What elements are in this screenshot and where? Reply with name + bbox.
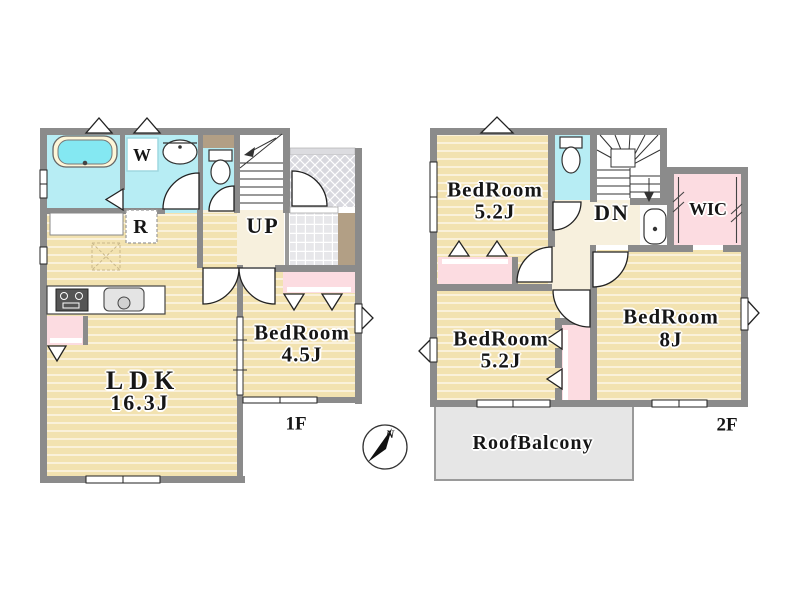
stove-icon — [56, 289, 88, 311]
label-bedroom45-size: 4.5J — [282, 345, 323, 366]
kitchen-counter — [47, 286, 165, 314]
genkan-tile — [290, 213, 338, 265]
label-bedroom-8j-size: 8J — [660, 330, 683, 351]
label-bedroom-top-name: BedRoom — [447, 180, 543, 201]
label-wic: WIC — [689, 200, 727, 218]
sliding-door — [237, 317, 243, 395]
hall-2f-lower — [548, 245, 592, 292]
label-stairs-up: UP — [246, 215, 279, 237]
bathtub-icon — [53, 136, 117, 167]
label-stairs-down: DN — [594, 202, 630, 224]
closet-shelf — [563, 330, 568, 400]
toilet-icon-1f — [209, 150, 232, 184]
entrance-threshold — [290, 207, 338, 213]
label-compass-north: N — [386, 428, 395, 440]
washbasin-icon-2f — [644, 209, 666, 244]
label-bedroom-left-name: BedRoom — [453, 329, 549, 350]
counter-cabinet — [50, 213, 123, 235]
pantry-shelf — [50, 338, 82, 343]
washbasin-icon-1f — [163, 140, 197, 164]
label-floor-1f: 1F — [285, 415, 306, 434]
label-roof-balcony: RoofBalcony — [473, 433, 594, 453]
label-washing-machine: W — [133, 146, 151, 164]
floorplan-drawing — [0, 0, 800, 600]
label-refrigerator: R — [133, 217, 148, 237]
closet-shelf — [442, 259, 508, 264]
label-bedroom45-name: BedRoom — [254, 323, 350, 344]
genkan-side-strip — [338, 213, 355, 265]
sink-icon — [104, 288, 144, 311]
label-bedroom-top-size: 5.2J — [475, 202, 516, 223]
porch-step — [290, 148, 355, 155]
label-bedroom-8j-name: BedRoom — [623, 307, 719, 328]
label-ldk-size: 16.3J — [110, 392, 170, 414]
closet-shelf — [287, 287, 351, 292]
floorplan-1f — [40, 118, 373, 483]
label-bedroom-left-size: 5.2J — [481, 351, 522, 372]
label-floor-2f: 2F — [716, 416, 737, 435]
toilet-counter-strip — [203, 135, 234, 148]
floorplan-canvas: LDK 16.3J BedRoom 4.5J UP W R 1F BedRoom… — [0, 0, 800, 600]
toilet-icon-2f — [560, 137, 582, 173]
floorplan-2f — [419, 117, 759, 480]
